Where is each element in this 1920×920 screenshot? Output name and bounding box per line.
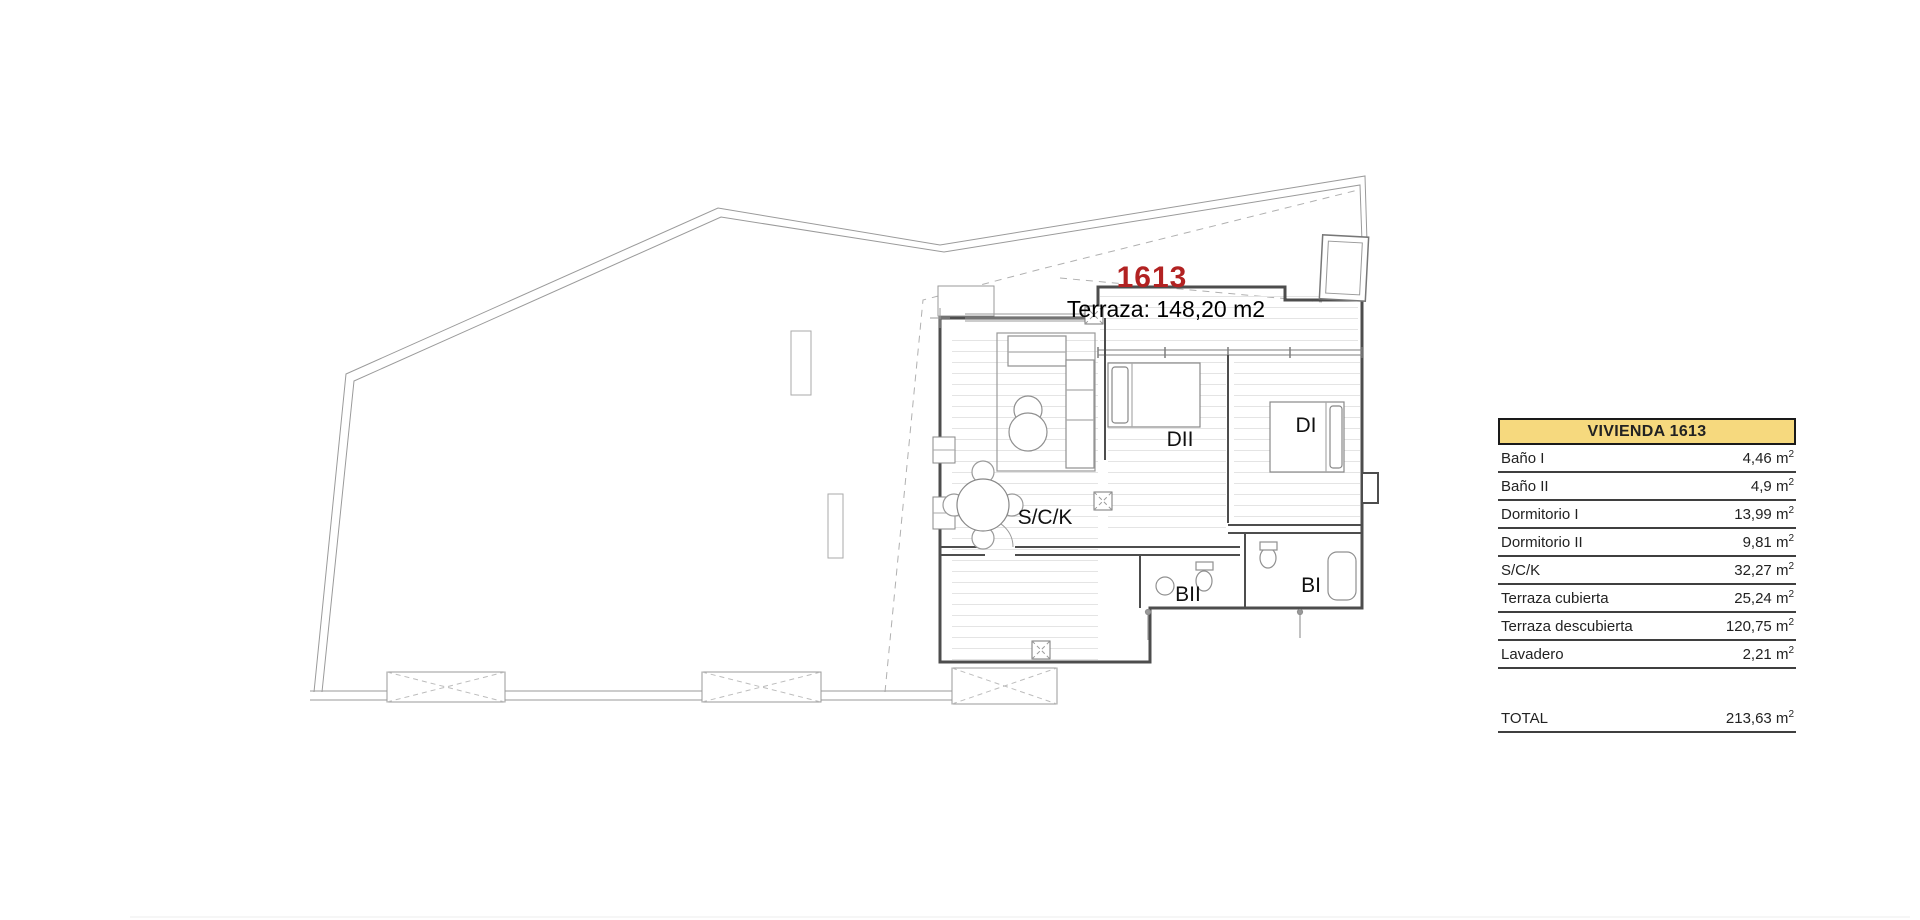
area-row-label: Baño I: [1501, 450, 1544, 467]
area-row-value: 9,81 m2: [1743, 534, 1794, 551]
square-superscript: 2: [1788, 561, 1794, 572]
area-row-value: 25,24 m2: [1734, 590, 1794, 607]
unit-number-label: 1613: [1117, 261, 1188, 294]
terrace-area-label: Terraza: 148,20 m2: [1067, 296, 1265, 322]
area-row: Dormitorio II9,81 m2: [1498, 529, 1796, 557]
areas-table-title: VIVIENDA 1613: [1498, 418, 1796, 445]
area-row-label: S/C/K: [1501, 562, 1540, 579]
square-superscript: 2: [1788, 645, 1794, 656]
area-row-label: Dormitorio I: [1501, 506, 1579, 523]
square-superscript: 2: [1788, 709, 1794, 720]
area-row-value: 32,27 m2: [1734, 562, 1794, 579]
area-row: S/C/K32,27 m2: [1498, 557, 1796, 585]
area-row: Baño II4,9 m2: [1498, 473, 1796, 501]
area-row: Baño I4,46 m2: [1498, 445, 1796, 473]
area-row-label: Dormitorio II: [1501, 534, 1583, 551]
square-superscript: 2: [1788, 505, 1794, 516]
square-superscript: 2: [1788, 449, 1794, 460]
square-superscript: 2: [1788, 477, 1794, 488]
room-label-di: DI: [1296, 414, 1317, 437]
areas-table-total-row: TOTAL 213,63 m2: [1498, 705, 1796, 733]
terrace-bench-2: [828, 494, 843, 558]
room-label-dii: DII: [1167, 428, 1194, 451]
area-row: Lavadero2,21 m2: [1498, 641, 1796, 669]
area-row-value: 2,21 m2: [1743, 646, 1794, 663]
total-label: TOTAL: [1501, 710, 1548, 727]
square-superscript: 2: [1788, 617, 1794, 628]
room-label-bii: BII: [1175, 583, 1201, 606]
area-row-label: Baño II: [1501, 478, 1549, 495]
room-label-bi: BI: [1301, 574, 1321, 597]
area-row-value: 4,46 m2: [1743, 450, 1794, 467]
area-row-value: 4,9 m2: [1751, 478, 1794, 495]
right-wall-niche: [1362, 473, 1378, 503]
area-row: Dormitorio I13,99 m2: [1498, 501, 1796, 529]
square-superscript: 2: [1788, 589, 1794, 600]
area-row-label: Terraza descubierta: [1501, 618, 1633, 635]
area-row-label: Lavadero: [1501, 646, 1564, 663]
bedroom1-bed: [1270, 402, 1344, 472]
bedroom2-bed: [1108, 363, 1200, 427]
top-left-planter: [938, 286, 994, 316]
area-row: Terraza descubierta120,75 m2: [1498, 613, 1796, 641]
room-label-sck: S/C/K: [1018, 506, 1073, 529]
total-value: 213,63 m2: [1726, 710, 1794, 727]
top-right-box: [1319, 235, 1368, 301]
terrace-bench-1: [791, 331, 811, 395]
floor-plan-page: 1613 Terraza: 148,20 m2 S/C/K DII DI BII…: [0, 0, 1920, 920]
terrace-railing: [310, 668, 1057, 704]
area-row-value: 120,75 m2: [1726, 618, 1794, 635]
area-table-rows: Baño I4,46 m2Baño II4,9 m2Dormitorio I13…: [1498, 445, 1796, 669]
square-superscript: 2: [1788, 533, 1794, 544]
areas-table: VIVIENDA 1613 Baño I4,46 m2Baño II4,9 m2…: [1498, 418, 1796, 733]
area-row-value: 13,99 m2: [1734, 506, 1794, 523]
area-row-label: Terraza cubierta: [1501, 590, 1609, 607]
area-row: Terraza cubierta25,24 m2: [1498, 585, 1796, 613]
